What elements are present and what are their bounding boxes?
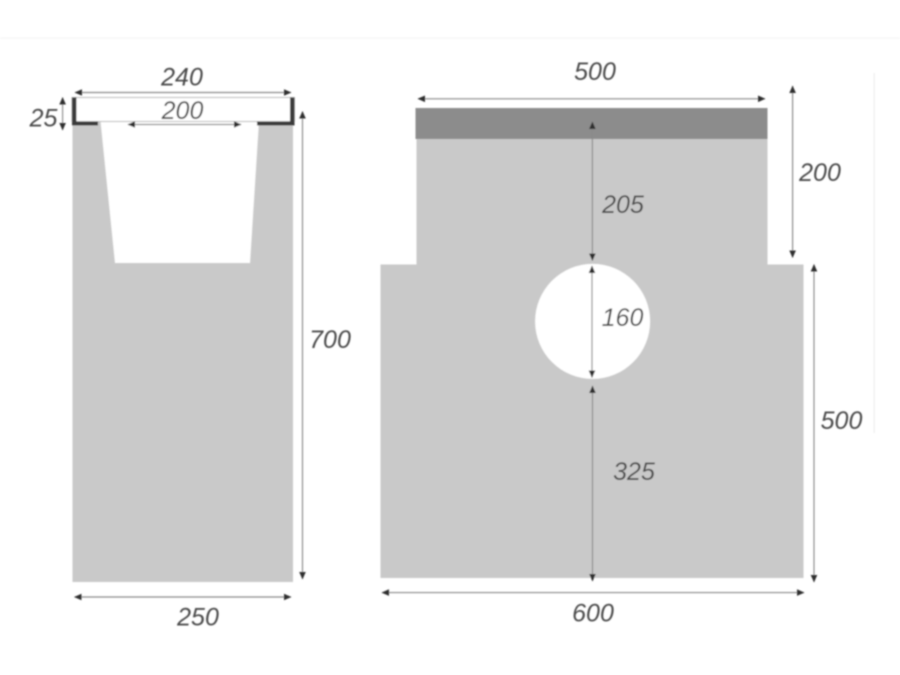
svg-text:325: 325	[613, 458, 655, 486]
svg-text:600: 600	[572, 600, 614, 628]
svg-text:200: 200	[798, 159, 841, 187]
svg-text:500: 500	[574, 58, 616, 86]
svg-text:500: 500	[821, 407, 863, 435]
svg-text:25: 25	[29, 105, 58, 133]
svg-text:160: 160	[602, 304, 644, 332]
svg-text:250: 250	[176, 604, 219, 632]
svg-text:700: 700	[309, 326, 351, 354]
svg-text:200: 200	[161, 97, 204, 125]
svg-text:240: 240	[160, 64, 203, 92]
svg-text:205: 205	[601, 191, 644, 219]
